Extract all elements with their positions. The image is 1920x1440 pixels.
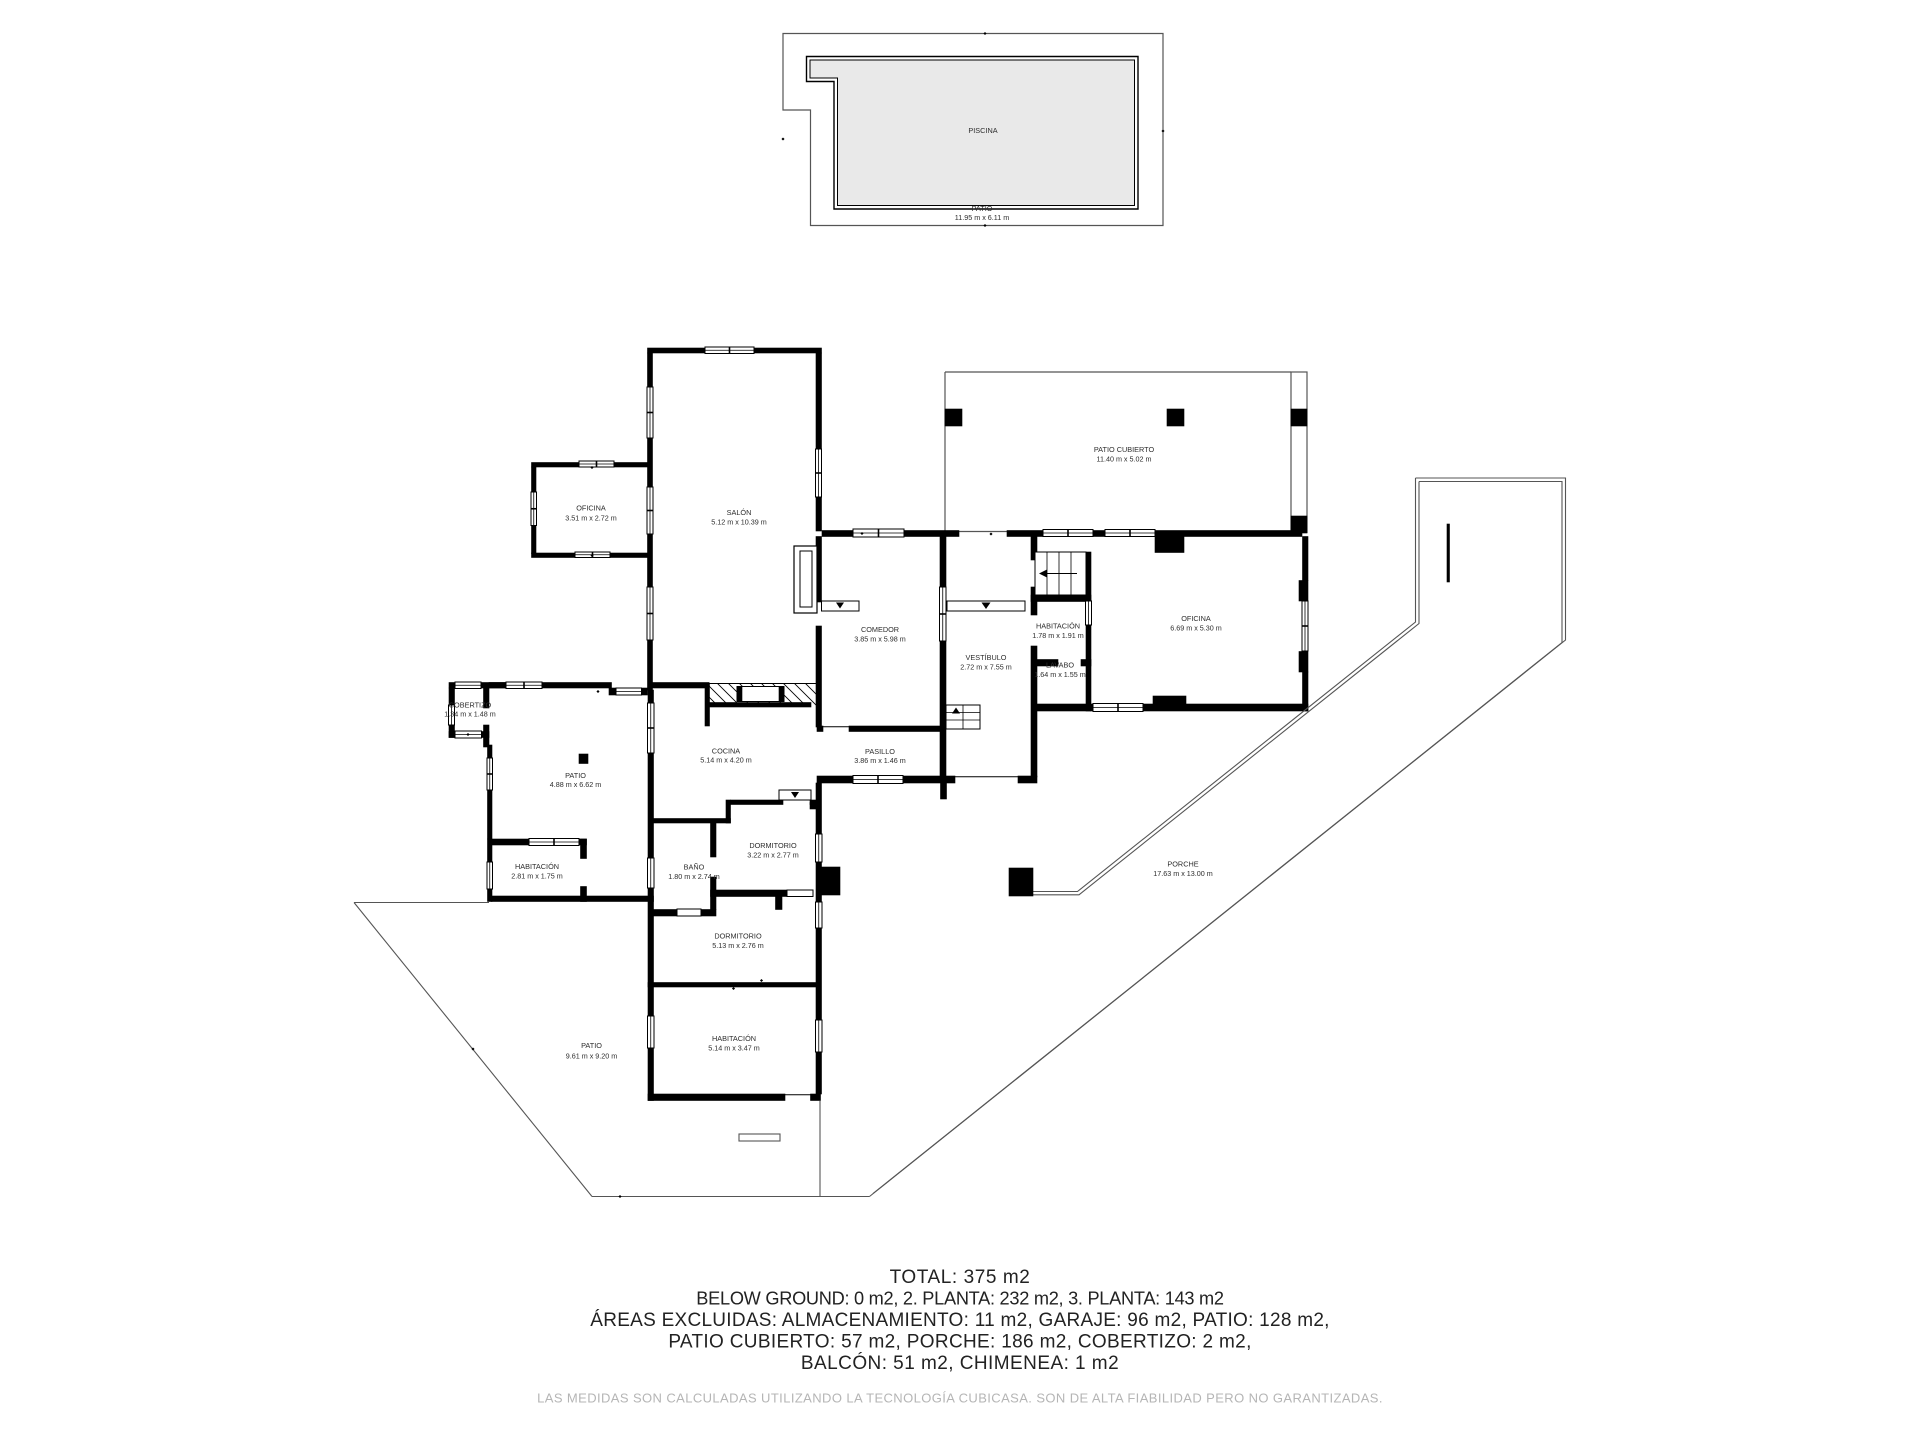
svg-text:3.86 m x 1.46 m: 3.86 m x 1.46 m <box>854 756 906 765</box>
svg-text:PORCHE: PORCHE <box>1167 860 1198 869</box>
svg-text:LAVABO: LAVABO <box>1046 661 1074 670</box>
svg-text:9.61 m x 9.20 m: 9.61 m x 9.20 m <box>566 1051 618 1060</box>
svg-text:5.12 m x 10.39 m: 5.12 m x 10.39 m <box>711 518 767 527</box>
svg-text:HABITACIÓN: HABITACIÓN <box>515 862 559 871</box>
svg-text:BELOW GROUND: 0 m2, 2. PLANTA:: BELOW GROUND: 0 m2, 2. PLANTA: 232 m2, 3… <box>696 1289 1224 1309</box>
svg-text:LAS MEDIDAS SON CALCULADAS UTI: LAS MEDIDAS SON CALCULADAS UTILIZANDO LA… <box>537 1391 1383 1406</box>
svg-text:COBERTIZO: COBERTIZO <box>449 701 492 710</box>
svg-text:4.88 m x 6.62 m: 4.88 m x 6.62 m <box>550 780 602 789</box>
svg-text:17.63 m x 13.00 m: 17.63 m x 13.00 m <box>1153 869 1213 878</box>
svg-text:SALÓN: SALÓN <box>727 508 752 517</box>
svg-text:6.69 m x 5.30 m: 6.69 m x 5.30 m <box>1170 624 1222 633</box>
svg-text:DORMITORIO: DORMITORIO <box>749 841 797 850</box>
svg-text:11.40 m x 5.02 m: 11.40 m x 5.02 m <box>1097 455 1152 464</box>
svg-text:PATIO: PATIO <box>565 771 586 780</box>
svg-text:2.72 m x 7.55 m: 2.72 m x 7.55 m <box>960 663 1012 672</box>
svg-text:OFICINA: OFICINA <box>576 504 606 513</box>
svg-text:COCINA: COCINA <box>712 747 741 756</box>
svg-text:HABITACIÓN: HABITACIÓN <box>712 1034 756 1043</box>
svg-text:PATIO CUBIERTO: 57 m2, PORCHE:: PATIO CUBIERTO: 57 m2, PORCHE: 186 m2, C… <box>668 1332 1251 1353</box>
svg-text:BALCÓN: 51 m2, CHIMENEA: 1 m2: BALCÓN: 51 m2, CHIMENEA: 1 m2 <box>801 1352 1119 1374</box>
svg-text:ÁREAS EXCLUIDAS: ALMACENAMIENT: ÁREAS EXCLUIDAS: ALMACENAMIENTO: 11 m2, … <box>590 1310 1329 1331</box>
svg-text:3.85 m x 5.98 m: 3.85 m x 5.98 m <box>854 635 906 644</box>
svg-text:1.80 m x 2.74 m: 1.80 m x 2.74 m <box>668 872 720 881</box>
svg-text:2.81 m x 1.75 m: 2.81 m x 1.75 m <box>511 872 563 881</box>
svg-text:COMEDOR: COMEDOR <box>861 625 899 634</box>
svg-text:5.14 m x 4.20 m: 5.14 m x 4.20 m <box>700 756 752 765</box>
svg-text:3.22 m x 2.77 m: 3.22 m x 2.77 m <box>747 851 799 860</box>
svg-text:OFICINA: OFICINA <box>1181 614 1211 623</box>
svg-text:TOTAL: 375 m2: TOTAL: 375 m2 <box>890 1267 1031 1288</box>
svg-text:VESTÍBULO: VESTÍBULO <box>966 653 1007 662</box>
svg-text:5.14 m x 3.47 m: 5.14 m x 3.47 m <box>708 1044 760 1053</box>
svg-text:1.78 m x 1.91 m: 1.78 m x 1.91 m <box>1032 631 1084 640</box>
svg-text:1.64 m x 1.55 m: 1.64 m x 1.55 m <box>1034 670 1086 679</box>
svg-text:PASILLO: PASILLO <box>865 747 895 756</box>
svg-text:PATIO: PATIO <box>972 204 993 213</box>
svg-text:PATIO CUBIERTO: PATIO CUBIERTO <box>1094 445 1155 454</box>
svg-text:5.13 m x 2.76 m: 5.13 m x 2.76 m <box>712 941 764 950</box>
svg-text:DORMITORIO: DORMITORIO <box>714 932 762 941</box>
svg-text:HABITACIÓN: HABITACIÓN <box>1036 622 1080 631</box>
svg-text:PISCINA: PISCINA <box>968 126 997 135</box>
svg-text:11.95 m x 6.11 m: 11.95 m x 6.11 m <box>955 213 1009 222</box>
svg-text:PATIO: PATIO <box>581 1041 602 1050</box>
svg-text:1.34 m x 1.48 m: 1.34 m x 1.48 m <box>444 710 496 719</box>
svg-text:3.51 m x 2.72 m: 3.51 m x 2.72 m <box>565 514 617 523</box>
svg-text:BAÑO: BAÑO <box>684 863 705 872</box>
